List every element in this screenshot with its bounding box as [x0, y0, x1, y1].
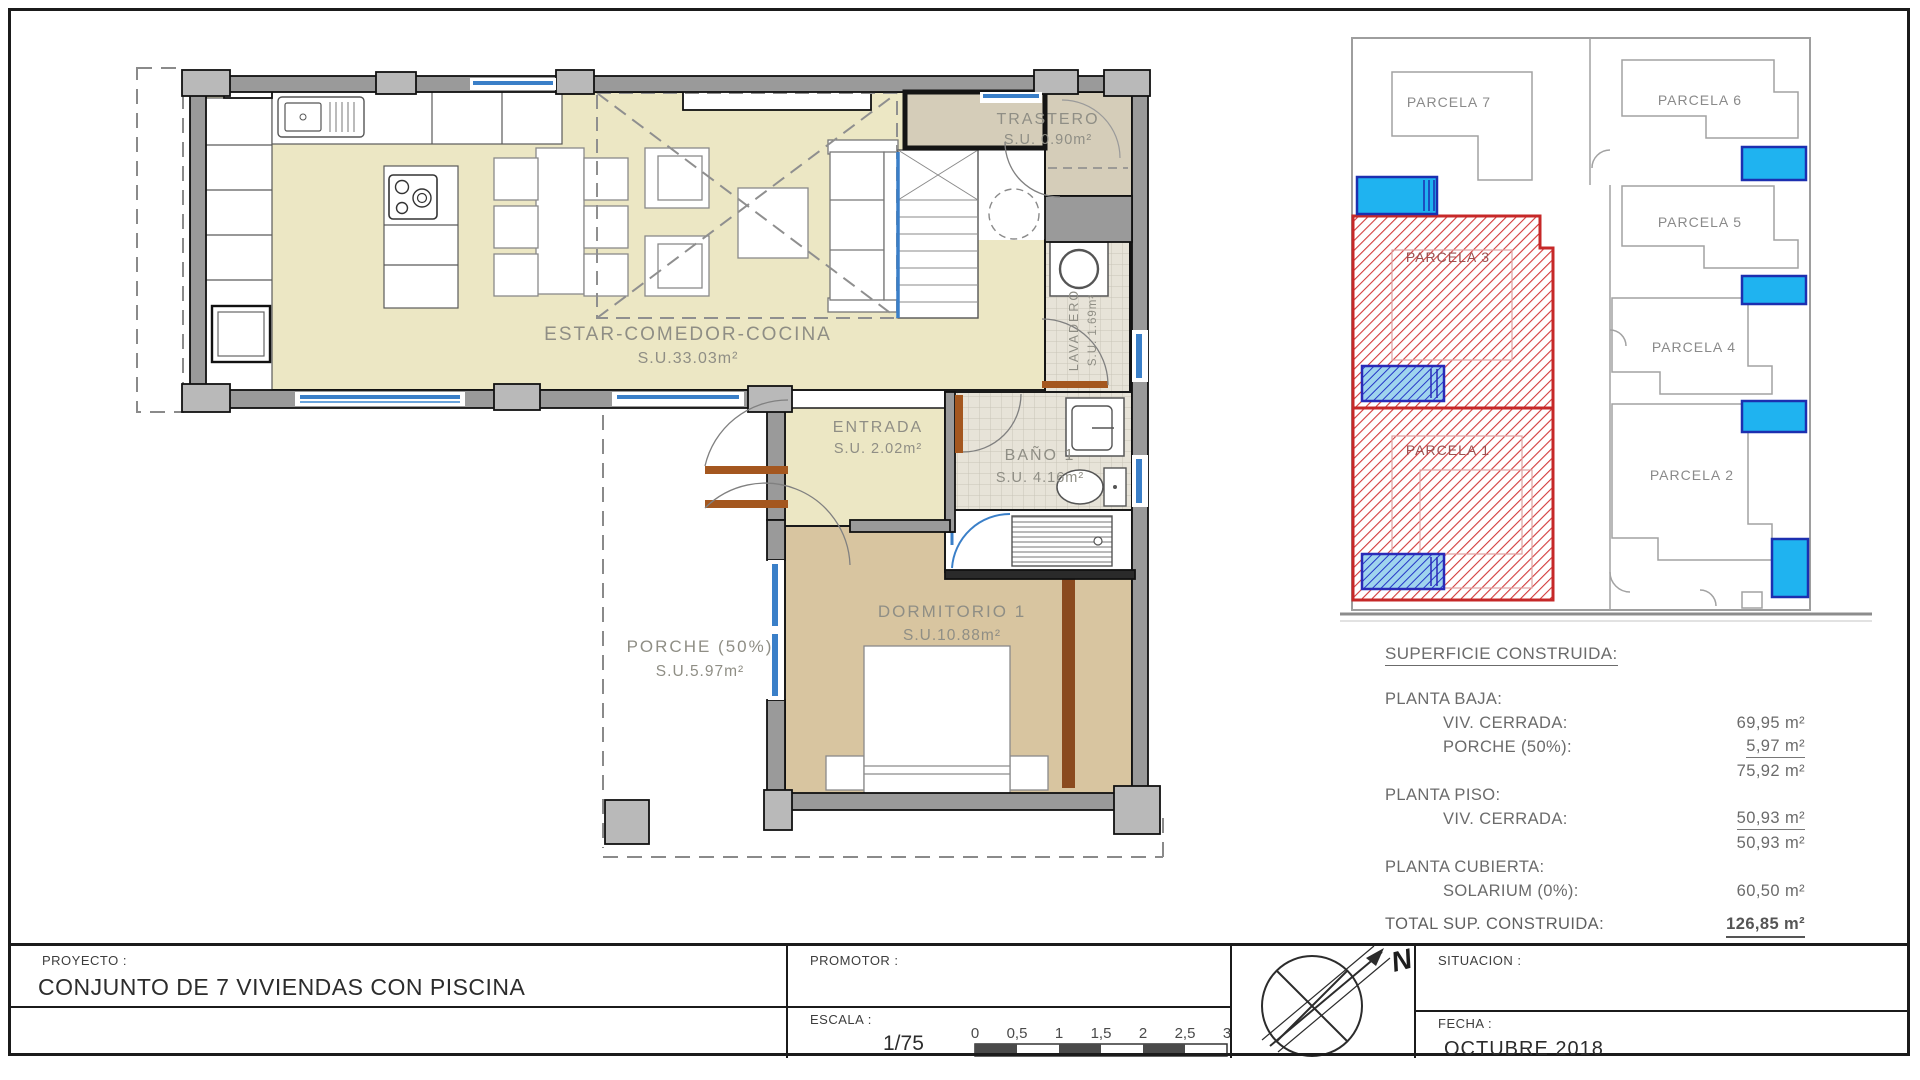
- proyecto-value: CONJUNTO DE 7 VIVIENDAS CON PISCINA: [38, 974, 525, 1001]
- title-block: PROYECTO : CONJUNTO DE 7 VIVIENDAS CON P…: [8, 943, 1910, 1058]
- surface-table: SUPERFICIE CONSTRUIDA: PLANTA BAJA: VIV.…: [1385, 644, 1807, 936]
- surface-group-title: PLANTA BAJA:: [1385, 687, 1807, 711]
- surface-subtotal: 50,93 m²: [1385, 831, 1807, 855]
- surface-total-row: TOTAL SUP. CONSTRUIDA:126,85 m²: [1385, 912, 1807, 936]
- titleblock-situacion-cell: SITUACION : FECHA : OCTUBRE 2018: [1414, 946, 1910, 1058]
- titleblock-proyecto-cell: PROYECTO : CONJUNTO DE 7 VIVIENDAS CON P…: [8, 946, 788, 1058]
- surface-row: VIV. CERRADA:50,93 m²: [1385, 807, 1807, 831]
- escala-label: ESCALA :: [810, 1012, 872, 1027]
- fecha-label: FECHA :: [1438, 1016, 1492, 1031]
- surface-group-title: PLANTA PISO:: [1385, 783, 1807, 807]
- surface-row: PORCHE (50%):5,97 m²: [1385, 735, 1807, 759]
- surface-group-title: PLANTA CUBIERTA:: [1385, 855, 1807, 879]
- titleblock-promotor-cell: PROMOTOR : ESCALA : 1/75: [788, 946, 1232, 1058]
- fecha-value: OCTUBRE 2018: [1444, 1038, 1604, 1061]
- titleblock-compass-cell: [1232, 946, 1414, 1058]
- surface-row: SOLARIUM (0%):60,50 m²: [1385, 879, 1807, 903]
- situacion-label: SITUACION :: [1438, 953, 1522, 968]
- surface-heading: SUPERFICIE CONSTRUIDA:: [1385, 644, 1618, 666]
- drawing-sheet: ESTAR-COMEDOR-COCINA S.U.33.03m² TRASTER…: [0, 0, 1920, 1080]
- escala-value: 1/75: [883, 1032, 924, 1056]
- promotor-label: PROMOTOR :: [810, 953, 899, 968]
- surface-row: VIV. CERRADA:69,95 m²: [1385, 711, 1807, 735]
- surface-subtotal: 75,92 m²: [1385, 759, 1807, 783]
- proyecto-label: PROYECTO :: [42, 953, 127, 968]
